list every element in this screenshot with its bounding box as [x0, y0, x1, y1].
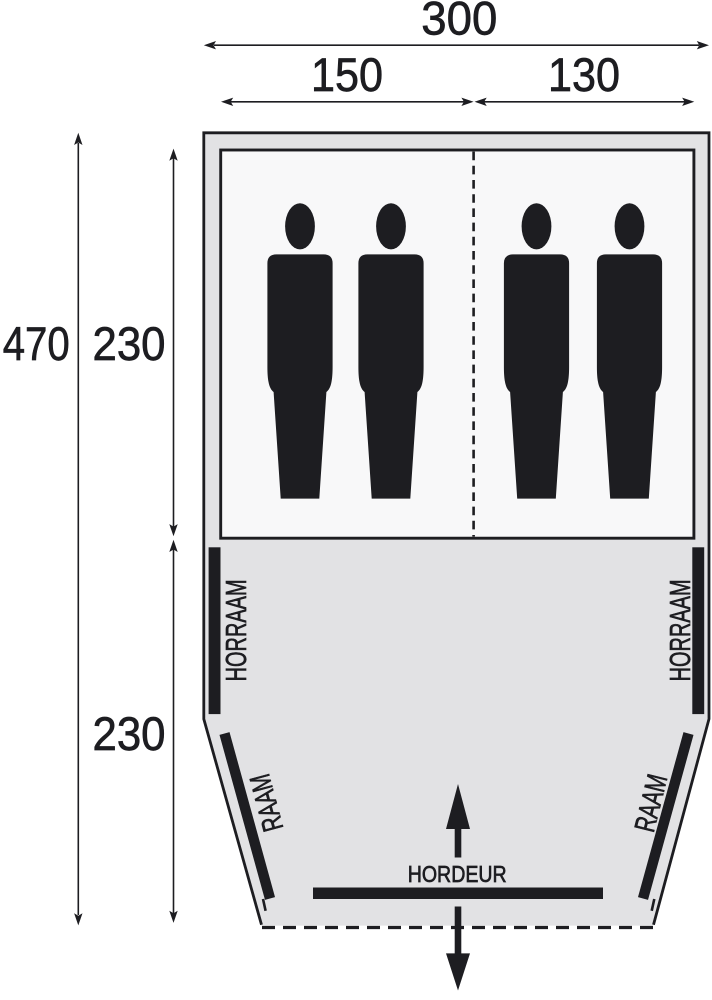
svg-text:230: 230 [93, 708, 166, 761]
svg-text:300: 300 [421, 0, 497, 46]
svg-text:HORRAAM: HORRAAM [221, 579, 253, 681]
svg-text:130: 130 [548, 49, 620, 102]
svg-text:230: 230 [93, 318, 166, 371]
svg-text:HORRAAM: HORRAAM [665, 579, 697, 681]
svg-text:HORDEUR: HORDEUR [408, 861, 507, 887]
svg-text:150: 150 [311, 49, 383, 102]
svg-text:470: 470 [3, 318, 70, 371]
